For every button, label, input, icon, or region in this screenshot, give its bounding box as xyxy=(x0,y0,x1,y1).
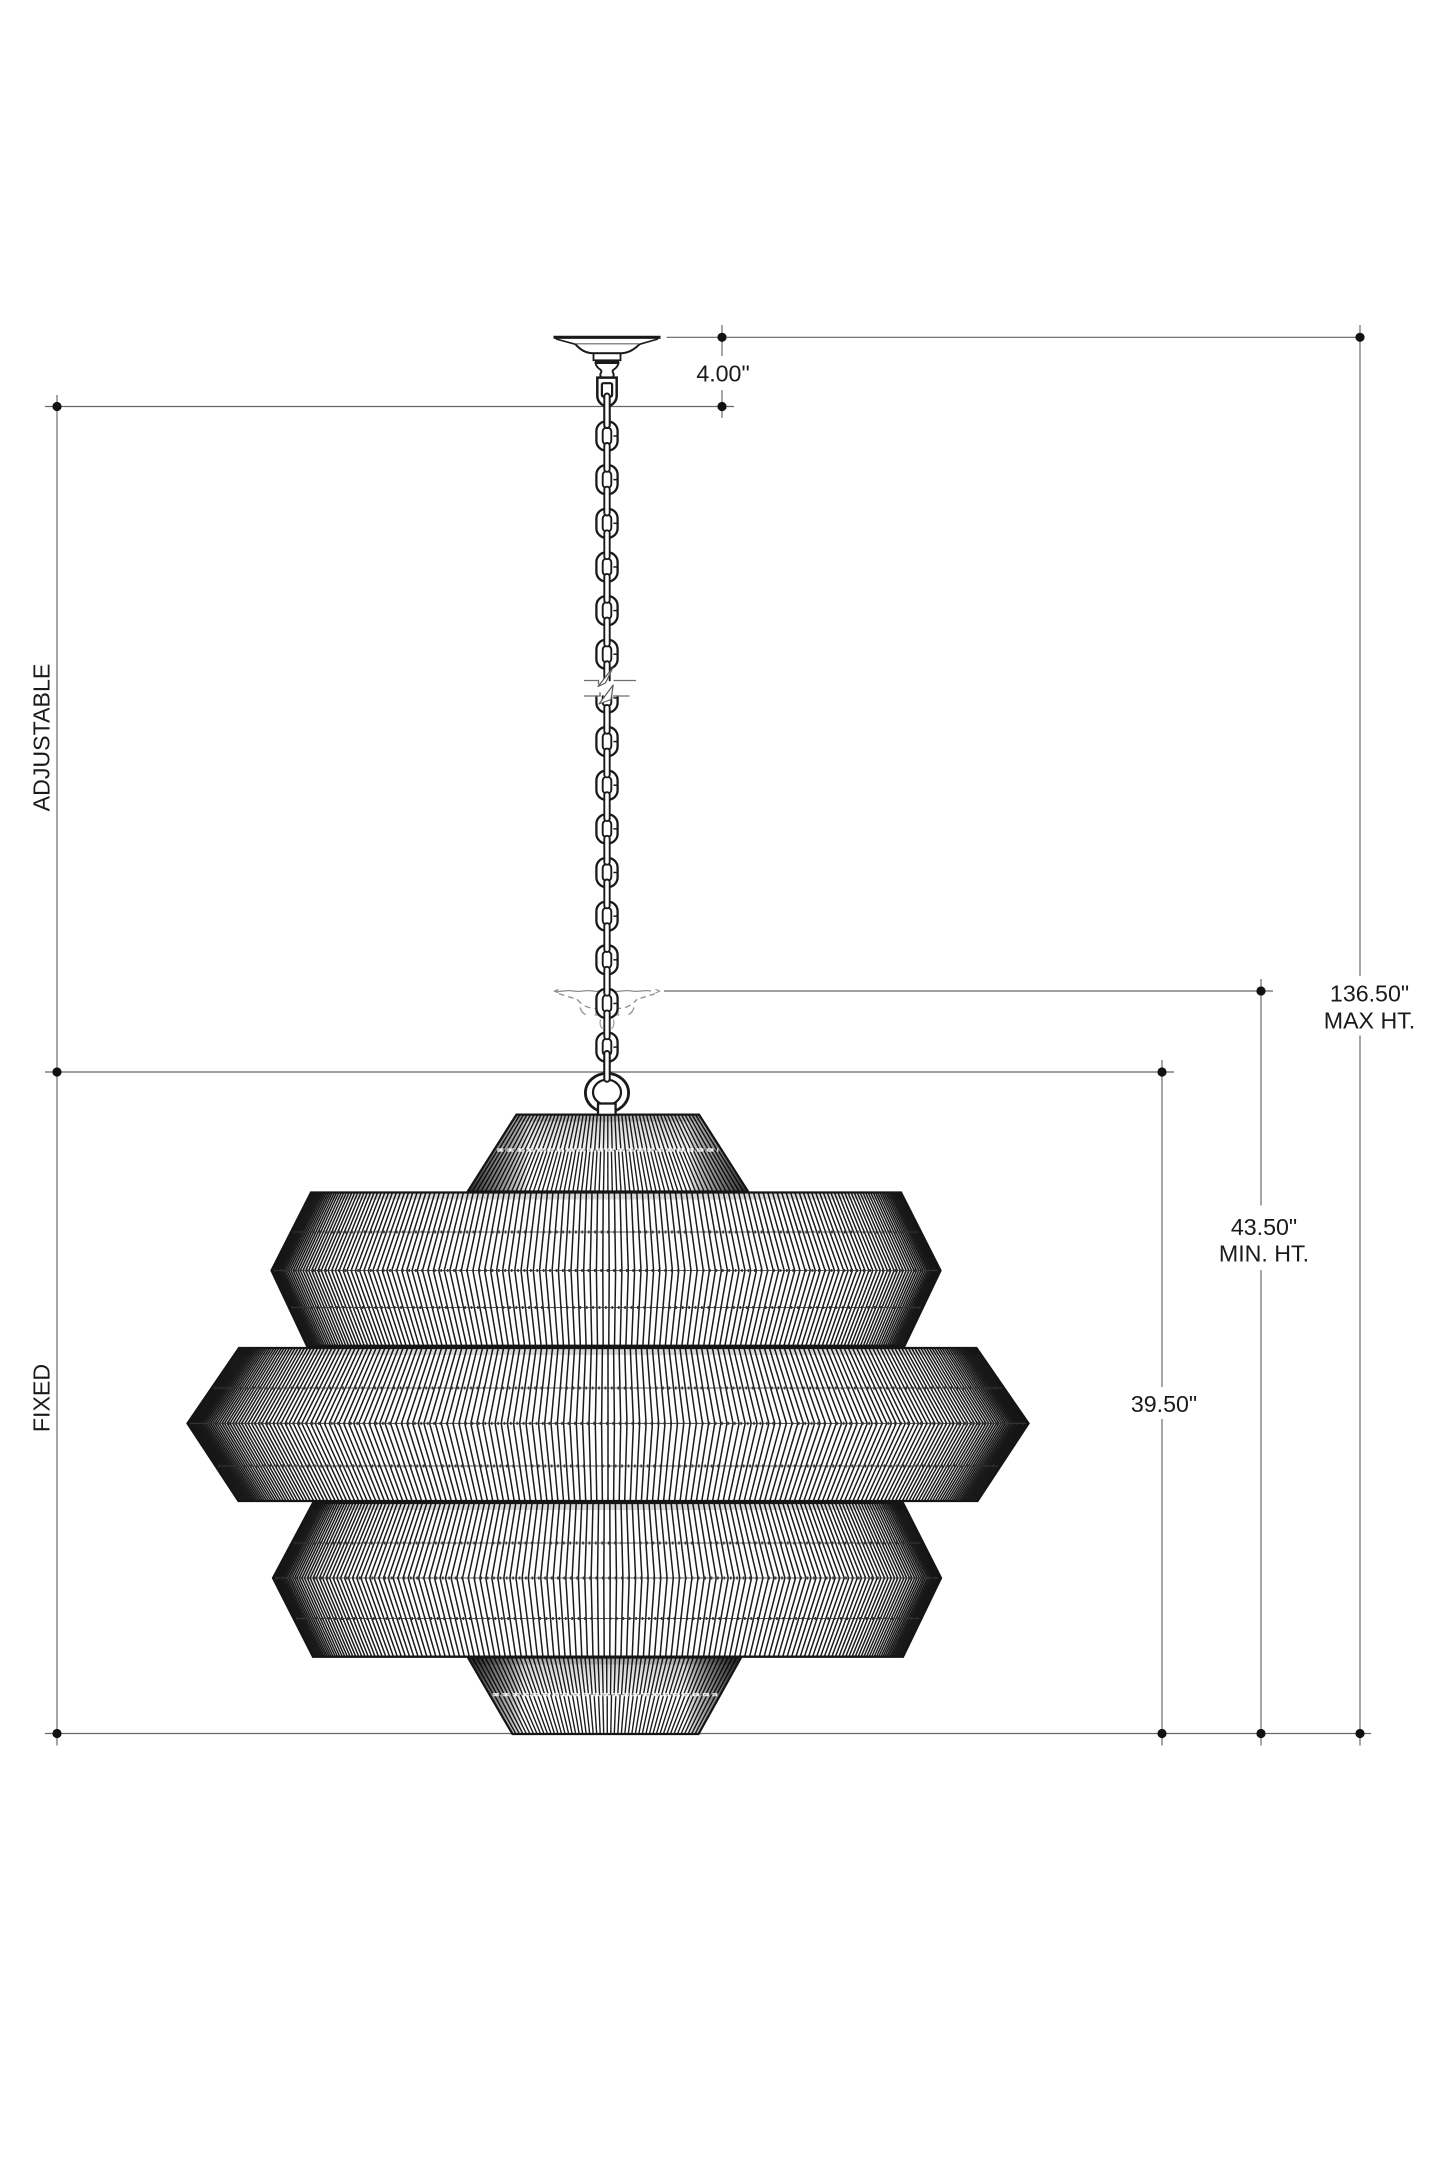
svg-text:MIN. HT.: MIN. HT. xyxy=(1219,1240,1309,1266)
svg-text:39.50": 39.50" xyxy=(1131,1391,1197,1417)
svg-text:136.50": 136.50" xyxy=(1330,981,1409,1007)
svg-text:MAX HT.: MAX HT. xyxy=(1324,1008,1415,1034)
svg-text:ADJUSTABLE: ADJUSTABLE xyxy=(29,664,55,812)
svg-text:43.50": 43.50" xyxy=(1231,1214,1297,1240)
svg-text:FIXED: FIXED xyxy=(29,1364,55,1432)
svg-text:4.00": 4.00" xyxy=(696,360,749,386)
